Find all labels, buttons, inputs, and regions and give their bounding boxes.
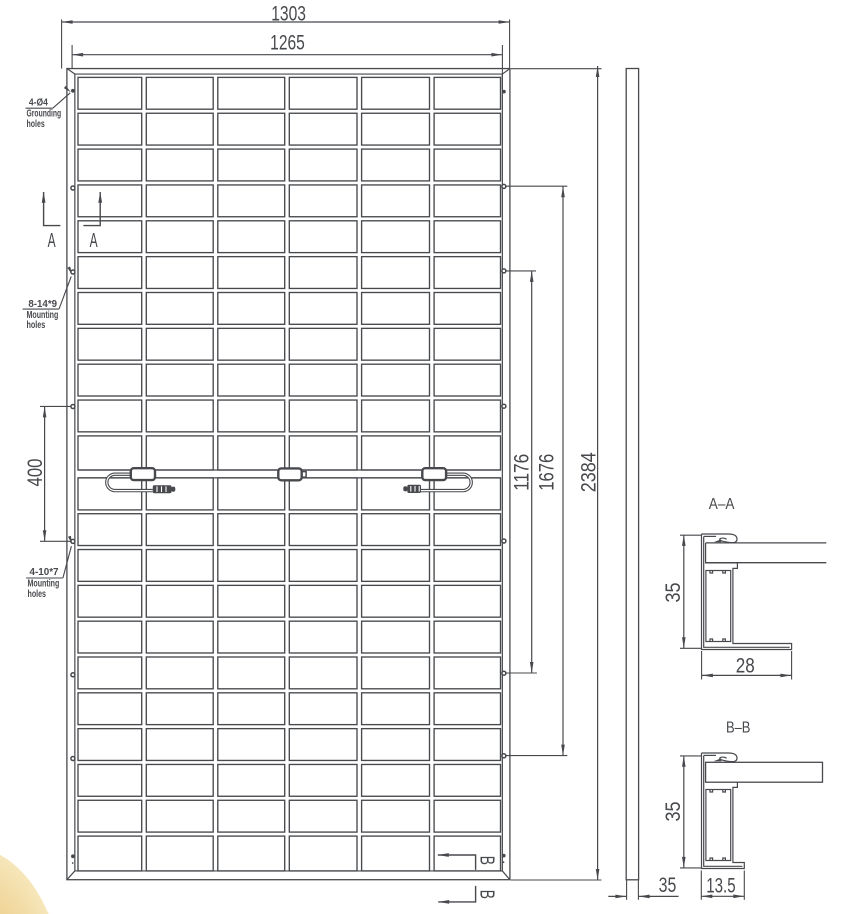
svg-text:35: 35 bbox=[659, 874, 677, 897]
svg-text:13.5: 13.5 bbox=[706, 875, 735, 898]
svg-text:4-Ø4: 4-Ø4 bbox=[29, 97, 48, 108]
svg-text:holes: holes bbox=[27, 119, 46, 130]
svg-text:1265: 1265 bbox=[270, 32, 305, 55]
svg-text:holes: holes bbox=[28, 589, 47, 600]
svg-text:8-14*9: 8-14*9 bbox=[28, 299, 57, 310]
svg-text:28: 28 bbox=[736, 655, 755, 678]
svg-text:400: 400 bbox=[24, 459, 47, 487]
svg-text:B: B bbox=[475, 856, 497, 865]
svg-text:A: A bbox=[90, 230, 98, 252]
svg-text:2384: 2384 bbox=[578, 452, 601, 492]
svg-text:B–B: B–B bbox=[726, 719, 751, 736]
svg-text:35: 35 bbox=[662, 583, 685, 603]
svg-text:holes: holes bbox=[27, 320, 46, 331]
svg-text:1176: 1176 bbox=[511, 454, 534, 491]
svg-text:Mounting: Mounting bbox=[28, 579, 60, 590]
svg-text:B: B bbox=[475, 890, 497, 899]
svg-text:A: A bbox=[48, 230, 56, 252]
svg-text:Grounding: Grounding bbox=[27, 108, 62, 119]
svg-text:35: 35 bbox=[662, 802, 685, 822]
svg-text:A–A: A–A bbox=[709, 496, 735, 513]
svg-text:4-10*7: 4-10*7 bbox=[30, 567, 59, 578]
svg-text:1303: 1303 bbox=[271, 2, 306, 25]
svg-text:1676: 1676 bbox=[536, 454, 559, 491]
